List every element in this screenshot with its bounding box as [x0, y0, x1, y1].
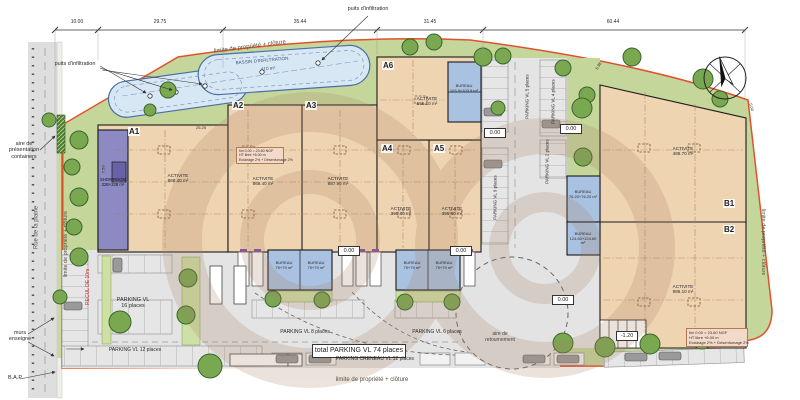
use-a5: ACTIVITE395.80 m² — [427, 206, 477, 217]
use-a4: ACTIVITE395.80 m² — [376, 206, 426, 217]
use-b1-type: ACTIVITE — [673, 146, 694, 151]
parking-16-label: PARKING VL 16 places — [111, 297, 155, 310]
bap-label: B.A.P — [0, 375, 30, 381]
office-b-lower-label: BUREAU124.60+124.60 m² — [567, 232, 599, 246]
dim-60-44: 60.44 — [595, 20, 631, 26]
unit-code-a4: A4 — [381, 144, 393, 153]
use-a1: ACTIVITE868.40 m² — [153, 173, 203, 184]
use-a4-area: 395.80 m² — [391, 211, 412, 216]
street-name: Rue de la plaine — [34, 190, 41, 264]
unit-code-a3: A3 — [305, 101, 317, 110]
office-b-upper-label: BUREAU76.20+76.20 m² — [567, 190, 599, 199]
use-a6-type: ACTIVITE — [417, 96, 438, 101]
parking-9-label: PARKING VL 9 places — [492, 165, 497, 231]
site-plan: 10.00 29.75 35.44 31.45 60.44 25.25 7.50… — [0, 0, 800, 400]
boundary-label-right: limite de propriété + clôture — [760, 187, 766, 297]
note-line-3: Eclairage 2% + Désenfumage 2% — [239, 158, 281, 162]
dim-10-00: 10.00 — [59, 20, 95, 26]
unit-code-a1: A1 — [128, 127, 140, 136]
parking-2-label: PARKING VL 2 places — [544, 129, 549, 195]
level-marker: 0.00 — [450, 246, 472, 256]
level-marker: 0.00 — [484, 128, 506, 138]
boundary-label-left: limite de propriété + clôture — [63, 189, 69, 299]
use-a2: ACTIVITE868.40 m² — [238, 176, 288, 187]
use-a2-area: 868.40 m² — [253, 181, 274, 186]
parking-creneau-label: PARKING CRENEAU VL 12 places — [315, 357, 435, 363]
use-b2-area: 986.10 m² — [673, 289, 694, 294]
showroom-area: 228+228 m² — [102, 182, 124, 187]
use-a5-area: 395.80 m² — [442, 211, 463, 216]
use-a3-type: ACTIVITE — [328, 176, 349, 181]
note-line-3: Eclairage 2% + Désenfumage 2% — [689, 340, 745, 345]
unit-code-b2: B2 — [723, 225, 735, 234]
parking-8-label: PARKING VL 8 places — [265, 330, 345, 336]
container-presentation-area — [57, 115, 65, 153]
site-plan-drawing — [0, 0, 800, 400]
turning-area-label: aire de retournement — [472, 332, 528, 344]
presentation-area-label: aire de présentation containers — [0, 141, 48, 160]
note-b2: fini 0.00 = 23.60 NGF HT libre +6.00 m E… — [686, 328, 748, 347]
parking-5-label: PARKING VL 5 places — [524, 64, 529, 130]
unit-code-a6: A6 — [382, 61, 394, 70]
use-a5-type: ACTIVITE — [442, 206, 463, 211]
unit-code-a5: A5 — [433, 144, 445, 153]
use-a2-type: ACTIVITE — [253, 176, 274, 181]
office-area: 79+79 m² — [307, 265, 324, 270]
office-area: 79+79 m² — [275, 265, 292, 270]
use-b2: ACTIVITE986.10 m² — [658, 284, 708, 295]
office-area: 124.60+124.60 m² — [570, 236, 597, 246]
unit-code-a2: A2 — [232, 101, 244, 110]
dim-25-25: 25.25 — [186, 126, 216, 131]
level-marker-minus: -1.20 — [616, 331, 638, 341]
office-area: 76.20+76.20 m² — [569, 194, 597, 199]
note-a2: fini 0.00 = 23.60 NGF HT libre +6.00 m E… — [236, 147, 284, 164]
boundary-label-bottom: limite de propriété + clôture — [297, 377, 447, 384]
office-area: 79+79 m² — [435, 265, 452, 270]
use-a1-area: 868.40 m² — [168, 178, 189, 183]
dim-35-44: 35.44 — [282, 20, 318, 26]
office-row-label-4: BUREAU79+79 m² — [429, 261, 459, 270]
use-a6: ACTIVITE555.10 m² — [402, 96, 452, 107]
use-a4-type: ACTIVITE — [391, 206, 412, 211]
use-b1: ACTIVITE486.70 m² — [658, 146, 708, 157]
office-area: 79+79 m² — [403, 265, 420, 270]
level-marker: 0.00 — [560, 124, 582, 134]
setback-label: RECUL DE 10m — [86, 257, 92, 317]
level-marker: 0.00 — [338, 246, 360, 256]
level-marker: 0.00 — [552, 295, 574, 305]
dim-31-45: 31.45 — [412, 20, 448, 26]
office-a6-label: BUREAU103.9+103.9 m² — [448, 84, 480, 93]
parking-6-label: PARKING VL 6 places — [397, 330, 477, 336]
use-a3: ACTIVITE887.95 m² — [313, 176, 363, 187]
sign-wall-label: murs enseigne — [0, 330, 40, 343]
unit-code-b1: B1 — [723, 199, 735, 208]
use-a3-area: 887.95 m² — [328, 181, 349, 186]
use-a1-type: ACTIVITE — [168, 173, 189, 178]
parking-4-label: PARKING VL 4 places — [550, 69, 555, 135]
use-b1-area: 486.70 m² — [673, 151, 694, 156]
office-row-label-1: BUREAU79+79 m² — [269, 261, 299, 270]
showroom-label: SHOWROOM228+228 m² — [99, 178, 127, 188]
parking-12-label: PARKING VL 12 places — [95, 348, 175, 354]
dim-29-75: 29.75 — [142, 20, 178, 26]
office-row-label-2: BUREAU79+79 m² — [301, 261, 331, 270]
wells-label-top: puits d'infiltration — [338, 6, 398, 12]
office-area: 103.9+103.9 m² — [450, 88, 478, 93]
use-a6-area: 555.10 m² — [417, 101, 438, 106]
showroom-block — [98, 130, 128, 250]
use-b2-type: ACTIVITE — [673, 284, 694, 289]
wells-label-left: puits d'infiltration — [47, 61, 103, 67]
office-row-label-3: BUREAU79+79 m² — [397, 261, 427, 270]
